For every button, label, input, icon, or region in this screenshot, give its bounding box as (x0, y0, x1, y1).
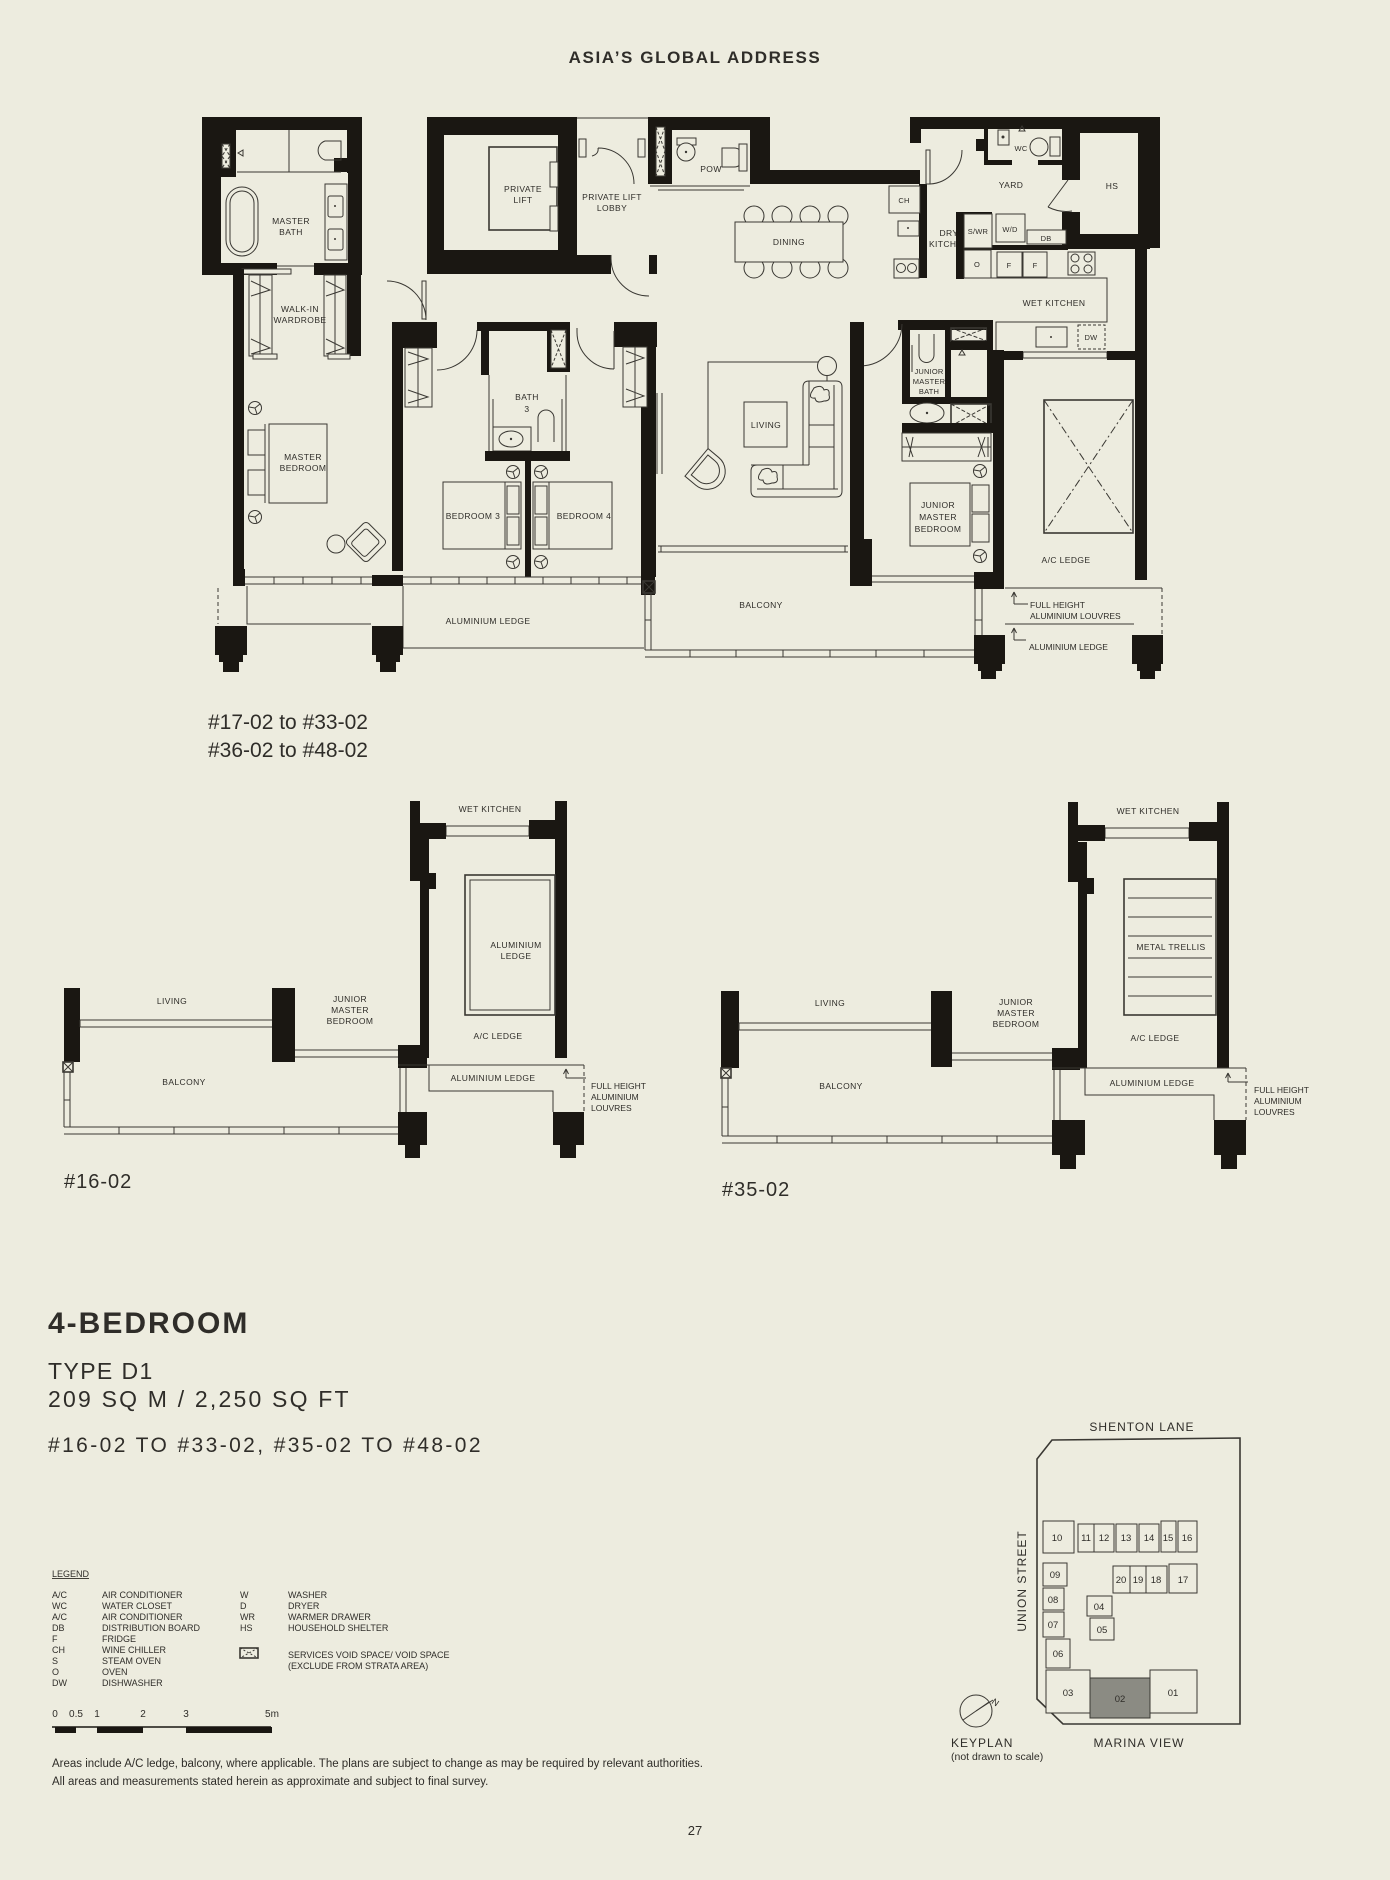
svg-text:WATER CLOSET: WATER CLOSET (102, 1601, 173, 1611)
svg-text:POW: POW (700, 164, 722, 174)
svg-text:BATH: BATH (279, 227, 303, 237)
svg-text:BALCONY: BALCONY (162, 1077, 205, 1087)
svg-text:BATH: BATH (515, 392, 539, 402)
svg-text:DISHWASHER: DISHWASHER (102, 1678, 163, 1688)
svg-text:All areas and measurements sta: All areas and measurements stated herein… (52, 1776, 488, 1788)
svg-text:BEDROOM 3: BEDROOM 3 (446, 511, 501, 521)
svg-text:ALUMINIUM LEDGE: ALUMINIUM LEDGE (1110, 1078, 1195, 1088)
svg-text:WASHER: WASHER (288, 1590, 328, 1600)
svg-text:Areas include A/C ledge, balco: Areas include A/C ledge, balcony, where … (52, 1758, 703, 1770)
svg-text:LOBBY: LOBBY (597, 203, 627, 213)
svg-text:09: 09 (1050, 1570, 1061, 1581)
svg-text:WR: WR (240, 1612, 255, 1622)
svg-text:MASTER: MASTER (919, 512, 957, 522)
svg-text:MASTER: MASTER (997, 1008, 1035, 1018)
svg-text:DB: DB (52, 1623, 65, 1633)
svg-text:20: 20 (1116, 1575, 1127, 1586)
svg-text:10: 10 (1052, 1533, 1063, 1544)
svg-text:04: 04 (1094, 1602, 1105, 1613)
svg-text:LOUVRES: LOUVRES (591, 1103, 632, 1113)
svg-text:15: 15 (1163, 1533, 1174, 1544)
svg-text:WARMER DRAWER: WARMER DRAWER (288, 1612, 371, 1622)
svg-text:MARINA VIEW: MARINA VIEW (1093, 1736, 1184, 1750)
svg-text:A/C: A/C (52, 1612, 68, 1622)
svg-text:3: 3 (183, 1709, 189, 1720)
svg-text:1: 1 (94, 1709, 100, 1720)
svg-text:ALUMINIUM LEDGE: ALUMINIUM LEDGE (1029, 642, 1108, 652)
svg-text:LIVING: LIVING (751, 420, 781, 430)
svg-text:0: 0 (52, 1709, 58, 1720)
svg-text:LEDGE: LEDGE (501, 951, 532, 961)
svg-text:W/D: W/D (1002, 225, 1018, 234)
svg-text:JUNIOR: JUNIOR (333, 994, 367, 1004)
svg-text:METAL TRELLIS: METAL TRELLIS (1136, 942, 1205, 952)
svg-text:AIR CONDITIONER: AIR CONDITIONER (102, 1590, 183, 1600)
svg-text:JUNIOR: JUNIOR (999, 997, 1033, 1007)
svg-text:AIR CONDITIONER: AIR CONDITIONER (102, 1612, 183, 1622)
svg-text:(EXCLUDE FROM STRATA AREA): (EXCLUDE FROM STRATA AREA) (288, 1661, 428, 1671)
svg-text:STEAM OVEN: STEAM OVEN (102, 1656, 161, 1666)
svg-text:HOUSEHOLD SHELTER: HOUSEHOLD SHELTER (288, 1623, 389, 1633)
svg-text:MASTER: MASTER (272, 216, 310, 226)
svg-text:LIFT: LIFT (513, 195, 532, 205)
svg-text:WC: WC (1015, 144, 1028, 153)
svg-text:ASIA’S GLOBAL ADDRESS: ASIA’S GLOBAL ADDRESS (569, 48, 822, 67)
svg-text:JUNIOR: JUNIOR (921, 500, 955, 510)
svg-text:ALUMINIUM LOUVRES: ALUMINIUM LOUVRES (1030, 611, 1121, 621)
svg-text:LIVING: LIVING (157, 996, 187, 1006)
svg-text:MASTER: MASTER (913, 377, 946, 386)
svg-text:BEDROOM: BEDROOM (915, 524, 962, 534)
svg-text:03: 03 (1063, 1688, 1074, 1699)
svg-text:BEDROOM 4: BEDROOM 4 (557, 511, 612, 521)
svg-text:BALCONY: BALCONY (819, 1081, 862, 1091)
svg-text:F: F (52, 1634, 58, 1644)
svg-text:A/C: A/C (52, 1590, 68, 1600)
svg-text:FULL HEIGHT: FULL HEIGHT (1030, 600, 1085, 610)
svg-text:ALUMINIUM: ALUMINIUM (1254, 1096, 1302, 1106)
svg-text:DW: DW (52, 1678, 67, 1688)
svg-text:ALUMINIUM LEDGE: ALUMINIUM LEDGE (446, 616, 531, 626)
svg-text:MASTER: MASTER (284, 452, 322, 462)
svg-text:LOUVRES: LOUVRES (1254, 1107, 1295, 1117)
svg-text:S: S (52, 1656, 58, 1666)
svg-text:DW: DW (1085, 333, 1099, 342)
svg-text:A/C LEDGE: A/C LEDGE (474, 1031, 523, 1041)
svg-text:08: 08 (1048, 1595, 1059, 1606)
svg-text:FULL HEIGHT: FULL HEIGHT (591, 1081, 646, 1091)
svg-text:DINING: DINING (773, 237, 805, 247)
svg-text:2: 2 (140, 1709, 146, 1720)
svg-text:WC: WC (52, 1601, 67, 1611)
svg-text:O: O (52, 1667, 59, 1677)
svg-text:KEYPLAN: KEYPLAN (951, 1736, 1013, 1750)
svg-text:5m: 5m (265, 1709, 279, 1720)
svg-text:#35-02: #35-02 (722, 1179, 790, 1201)
svg-text:(not drawn to scale): (not drawn to scale) (951, 1751, 1043, 1763)
svg-text:ALUMINIUM: ALUMINIUM (490, 940, 541, 950)
svg-text:F: F (1007, 261, 1012, 270)
svg-text:BEDROOM: BEDROOM (993, 1019, 1040, 1029)
svg-text:O: O (974, 260, 980, 269)
svg-text:DRYER: DRYER (288, 1601, 320, 1611)
svg-text:BEDROOM: BEDROOM (327, 1016, 374, 1026)
svg-text:4-BEDROOM: 4-BEDROOM (48, 1307, 249, 1340)
svg-text:06: 06 (1053, 1649, 1064, 1660)
svg-text:WARDROBE: WARDROBE (274, 315, 327, 325)
svg-text:MASTER: MASTER (331, 1005, 369, 1015)
svg-text:HS: HS (1106, 181, 1119, 191)
svg-text:17: 17 (1178, 1575, 1189, 1586)
svg-text:LIVING: LIVING (815, 998, 845, 1008)
svg-text:12: 12 (1099, 1533, 1110, 1544)
svg-text:UNION STREET: UNION STREET (1015, 1530, 1029, 1631)
svg-text:209 SQ M / 2,250 SQ FT: 209 SQ M / 2,250 SQ FT (48, 1386, 351, 1412)
svg-text:19: 19 (1133, 1575, 1144, 1586)
svg-text:W: W (240, 1590, 249, 1600)
svg-text:CH: CH (52, 1645, 65, 1655)
svg-text:OVEN: OVEN (102, 1667, 128, 1677)
svg-text:WET KITCHEN: WET KITCHEN (459, 804, 522, 814)
svg-text:BEDROOM: BEDROOM (280, 463, 327, 473)
svg-text:ALUMINIUM: ALUMINIUM (591, 1092, 639, 1102)
svg-text:BALCONY: BALCONY (739, 600, 782, 610)
svg-text:18: 18 (1151, 1575, 1162, 1586)
svg-text:#36-02 to #48-02: #36-02 to #48-02 (208, 739, 368, 762)
svg-text:ALUMINIUM LEDGE: ALUMINIUM LEDGE (451, 1073, 536, 1083)
svg-text:#16-02: #16-02 (64, 1171, 132, 1193)
svg-text:LEGEND: LEGEND (52, 1569, 90, 1579)
svg-text:0.5: 0.5 (69, 1709, 83, 1720)
svg-text:SHENTON LANE: SHENTON LANE (1089, 1420, 1194, 1434)
svg-text:WET KITCHEN: WET KITCHEN (1117, 806, 1180, 816)
svg-text:13: 13 (1121, 1533, 1132, 1544)
svg-text:#16-02 TO #33-02, #35-02 TO: #16-02 TO #33-02, #35-02 TO #48-02 (48, 1434, 483, 1457)
svg-text:JUNIOR: JUNIOR (914, 367, 944, 376)
svg-text:WET KITCHEN: WET KITCHEN (1023, 298, 1086, 308)
svg-text:TYPE D1: TYPE D1 (48, 1358, 154, 1384)
svg-text:SERVICES VOID SPACE/ VOID SPAC: SERVICES VOID SPACE/ VOID SPACE (288, 1650, 450, 1660)
svg-text:CH: CH (898, 196, 909, 205)
svg-text:WALK-IN: WALK-IN (281, 304, 319, 314)
svg-text:16: 16 (1182, 1533, 1193, 1544)
svg-text:HS: HS (240, 1623, 253, 1633)
svg-text:F: F (1033, 261, 1038, 270)
svg-text:PRIVATE: PRIVATE (504, 184, 542, 194)
svg-text:D: D (240, 1601, 247, 1611)
svg-text:07: 07 (1048, 1620, 1059, 1631)
svg-text:A/C LEDGE: A/C LEDGE (1042, 555, 1091, 565)
svg-text:YARD: YARD (999, 180, 1024, 190)
svg-text:DRY: DRY (940, 228, 959, 238)
svg-text:05: 05 (1097, 1625, 1108, 1636)
svg-text:A/C LEDGE: A/C LEDGE (1131, 1033, 1180, 1043)
svg-text:01: 01 (1168, 1688, 1179, 1699)
svg-text:WINE CHILLER: WINE CHILLER (102, 1645, 167, 1655)
svg-text:27: 27 (688, 1823, 702, 1838)
svg-text:#17-02 to #33-02: #17-02 to #33-02 (208, 711, 368, 734)
svg-text:PRIVATE LIFT: PRIVATE LIFT (582, 192, 642, 202)
svg-text:02: 02 (1115, 1694, 1126, 1705)
svg-text:BATH: BATH (919, 387, 939, 396)
svg-text:3: 3 (524, 404, 529, 414)
svg-text:11: 11 (1081, 1533, 1091, 1544)
svg-text:FULL HEIGHT: FULL HEIGHT (1254, 1085, 1309, 1095)
svg-text:S/WR: S/WR (968, 227, 989, 236)
svg-text:DISTRIBUTION BOARD: DISTRIBUTION BOARD (102, 1623, 201, 1633)
svg-text:14: 14 (1144, 1533, 1155, 1544)
svg-text:FRIDGE: FRIDGE (102, 1634, 136, 1644)
svg-text:DB: DB (1041, 234, 1052, 243)
